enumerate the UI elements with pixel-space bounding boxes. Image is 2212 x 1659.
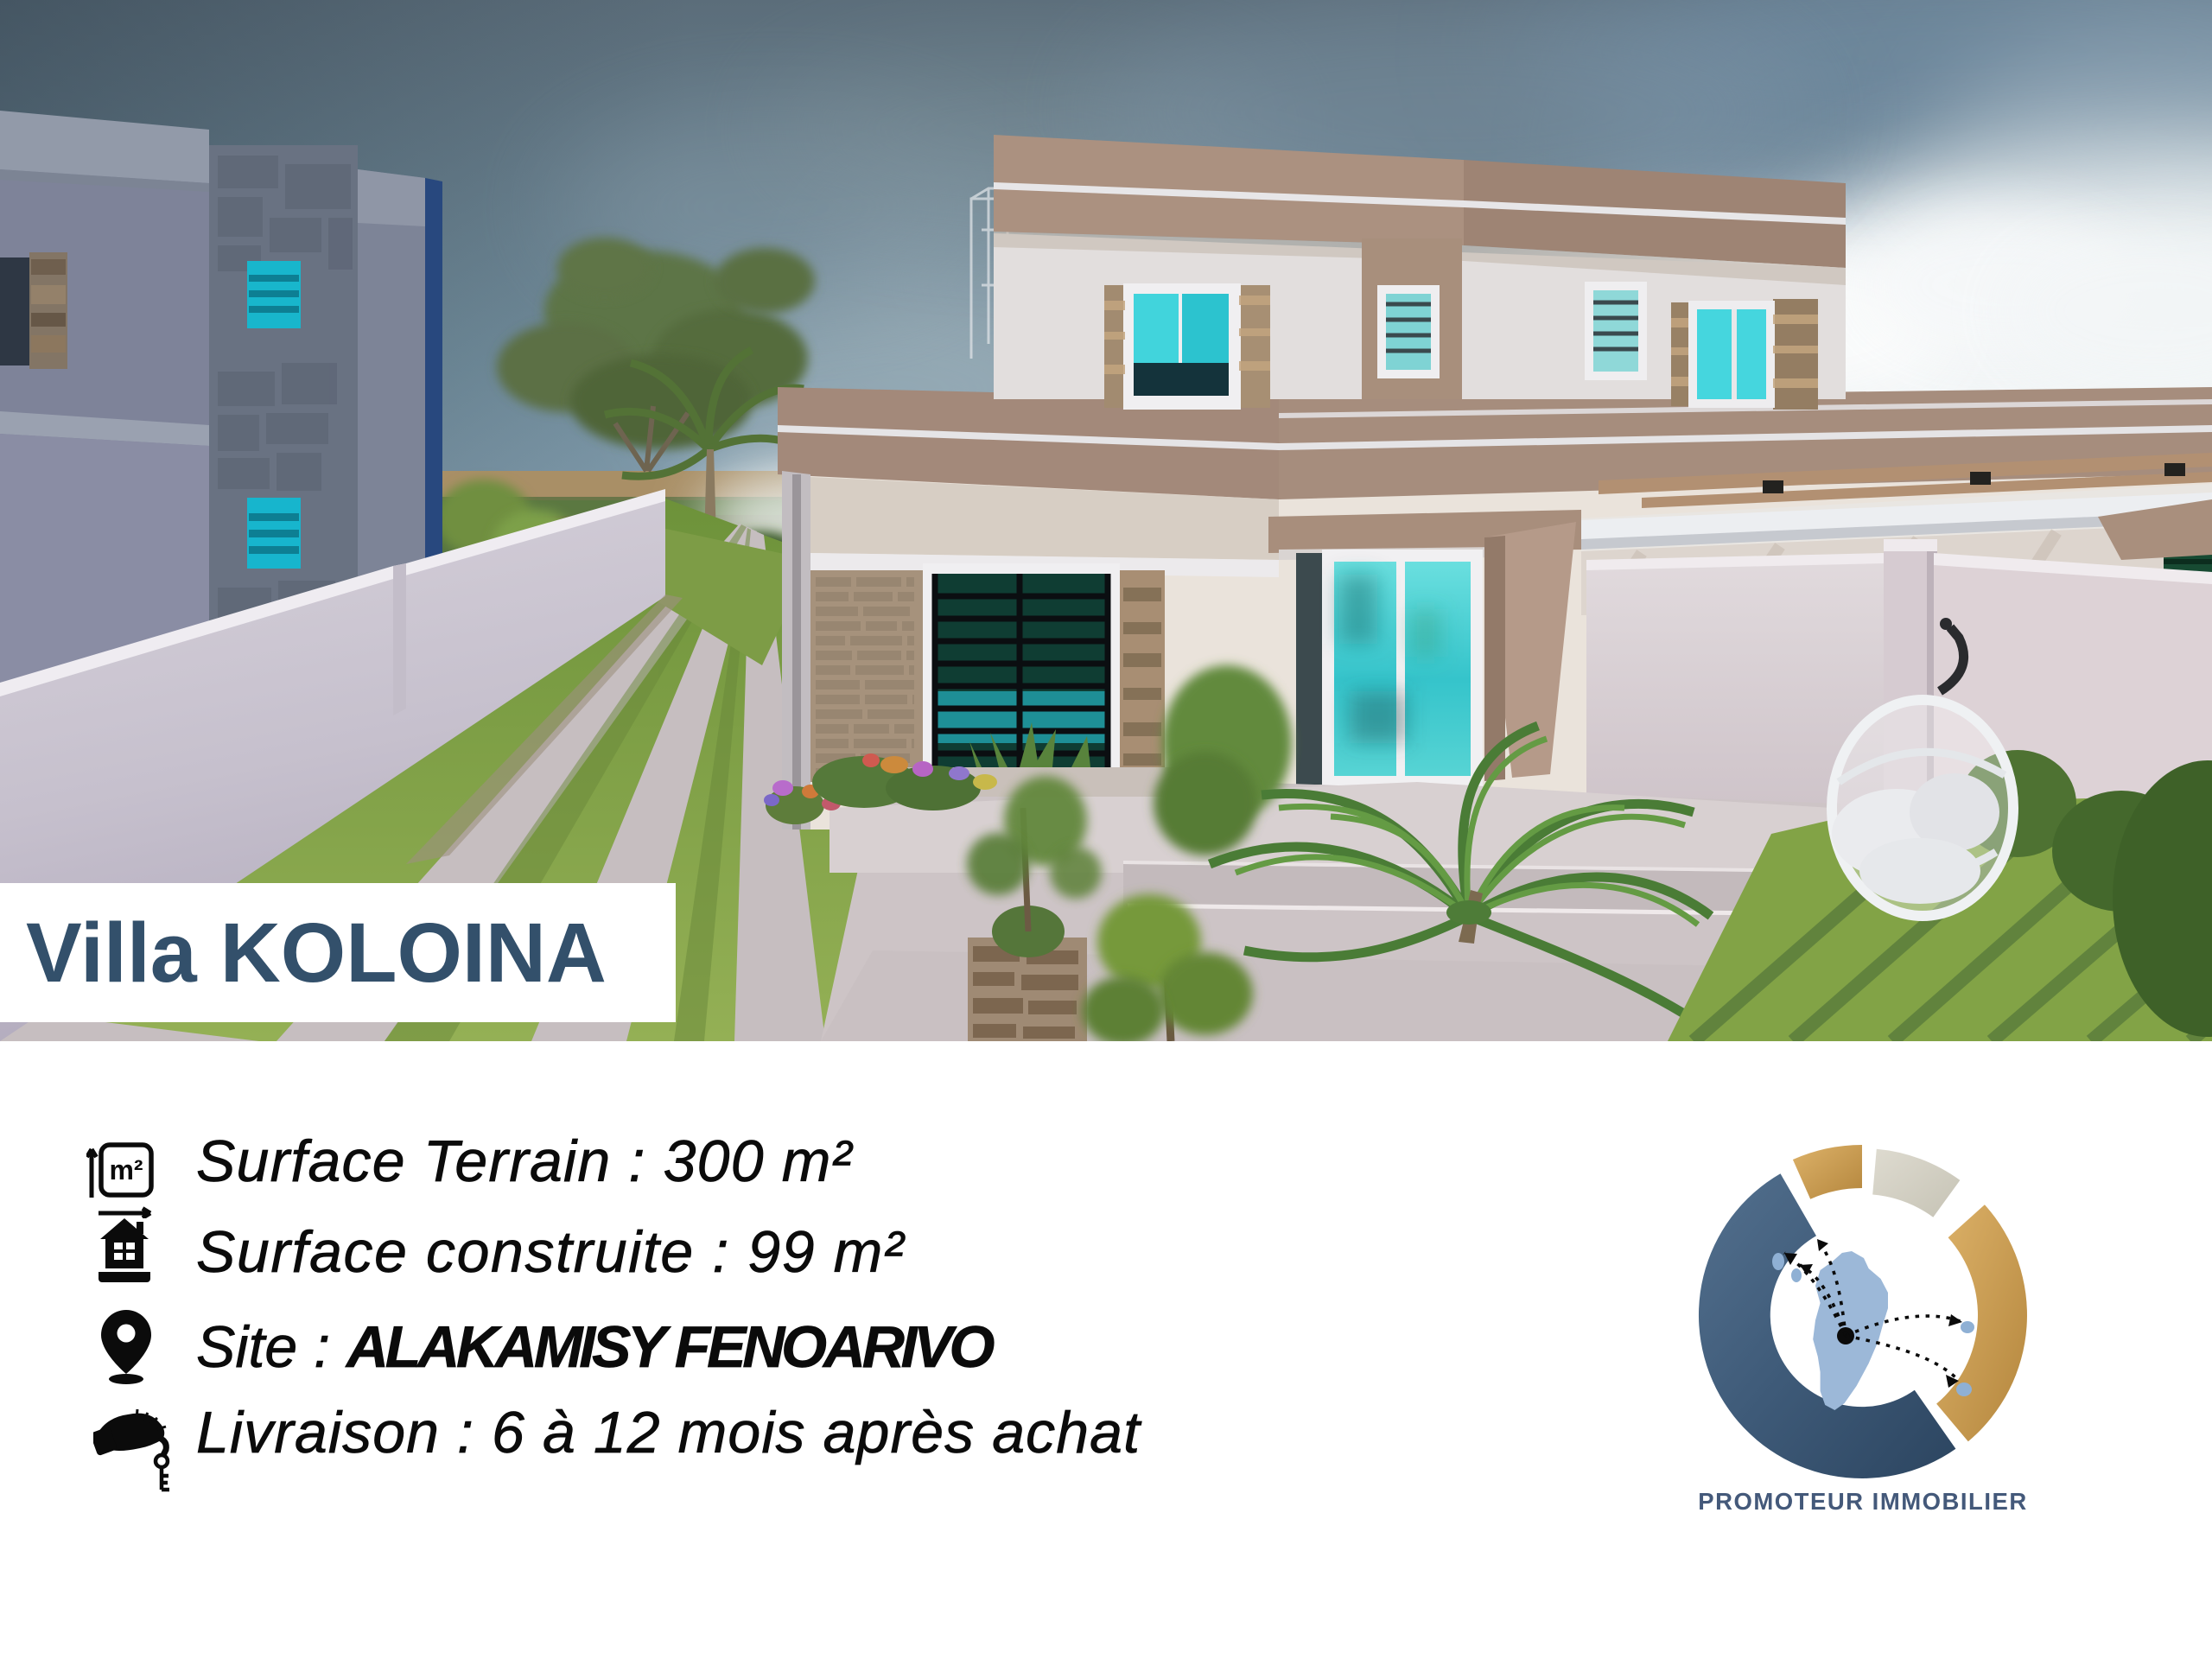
- svg-text:m²: m²: [109, 1154, 143, 1185]
